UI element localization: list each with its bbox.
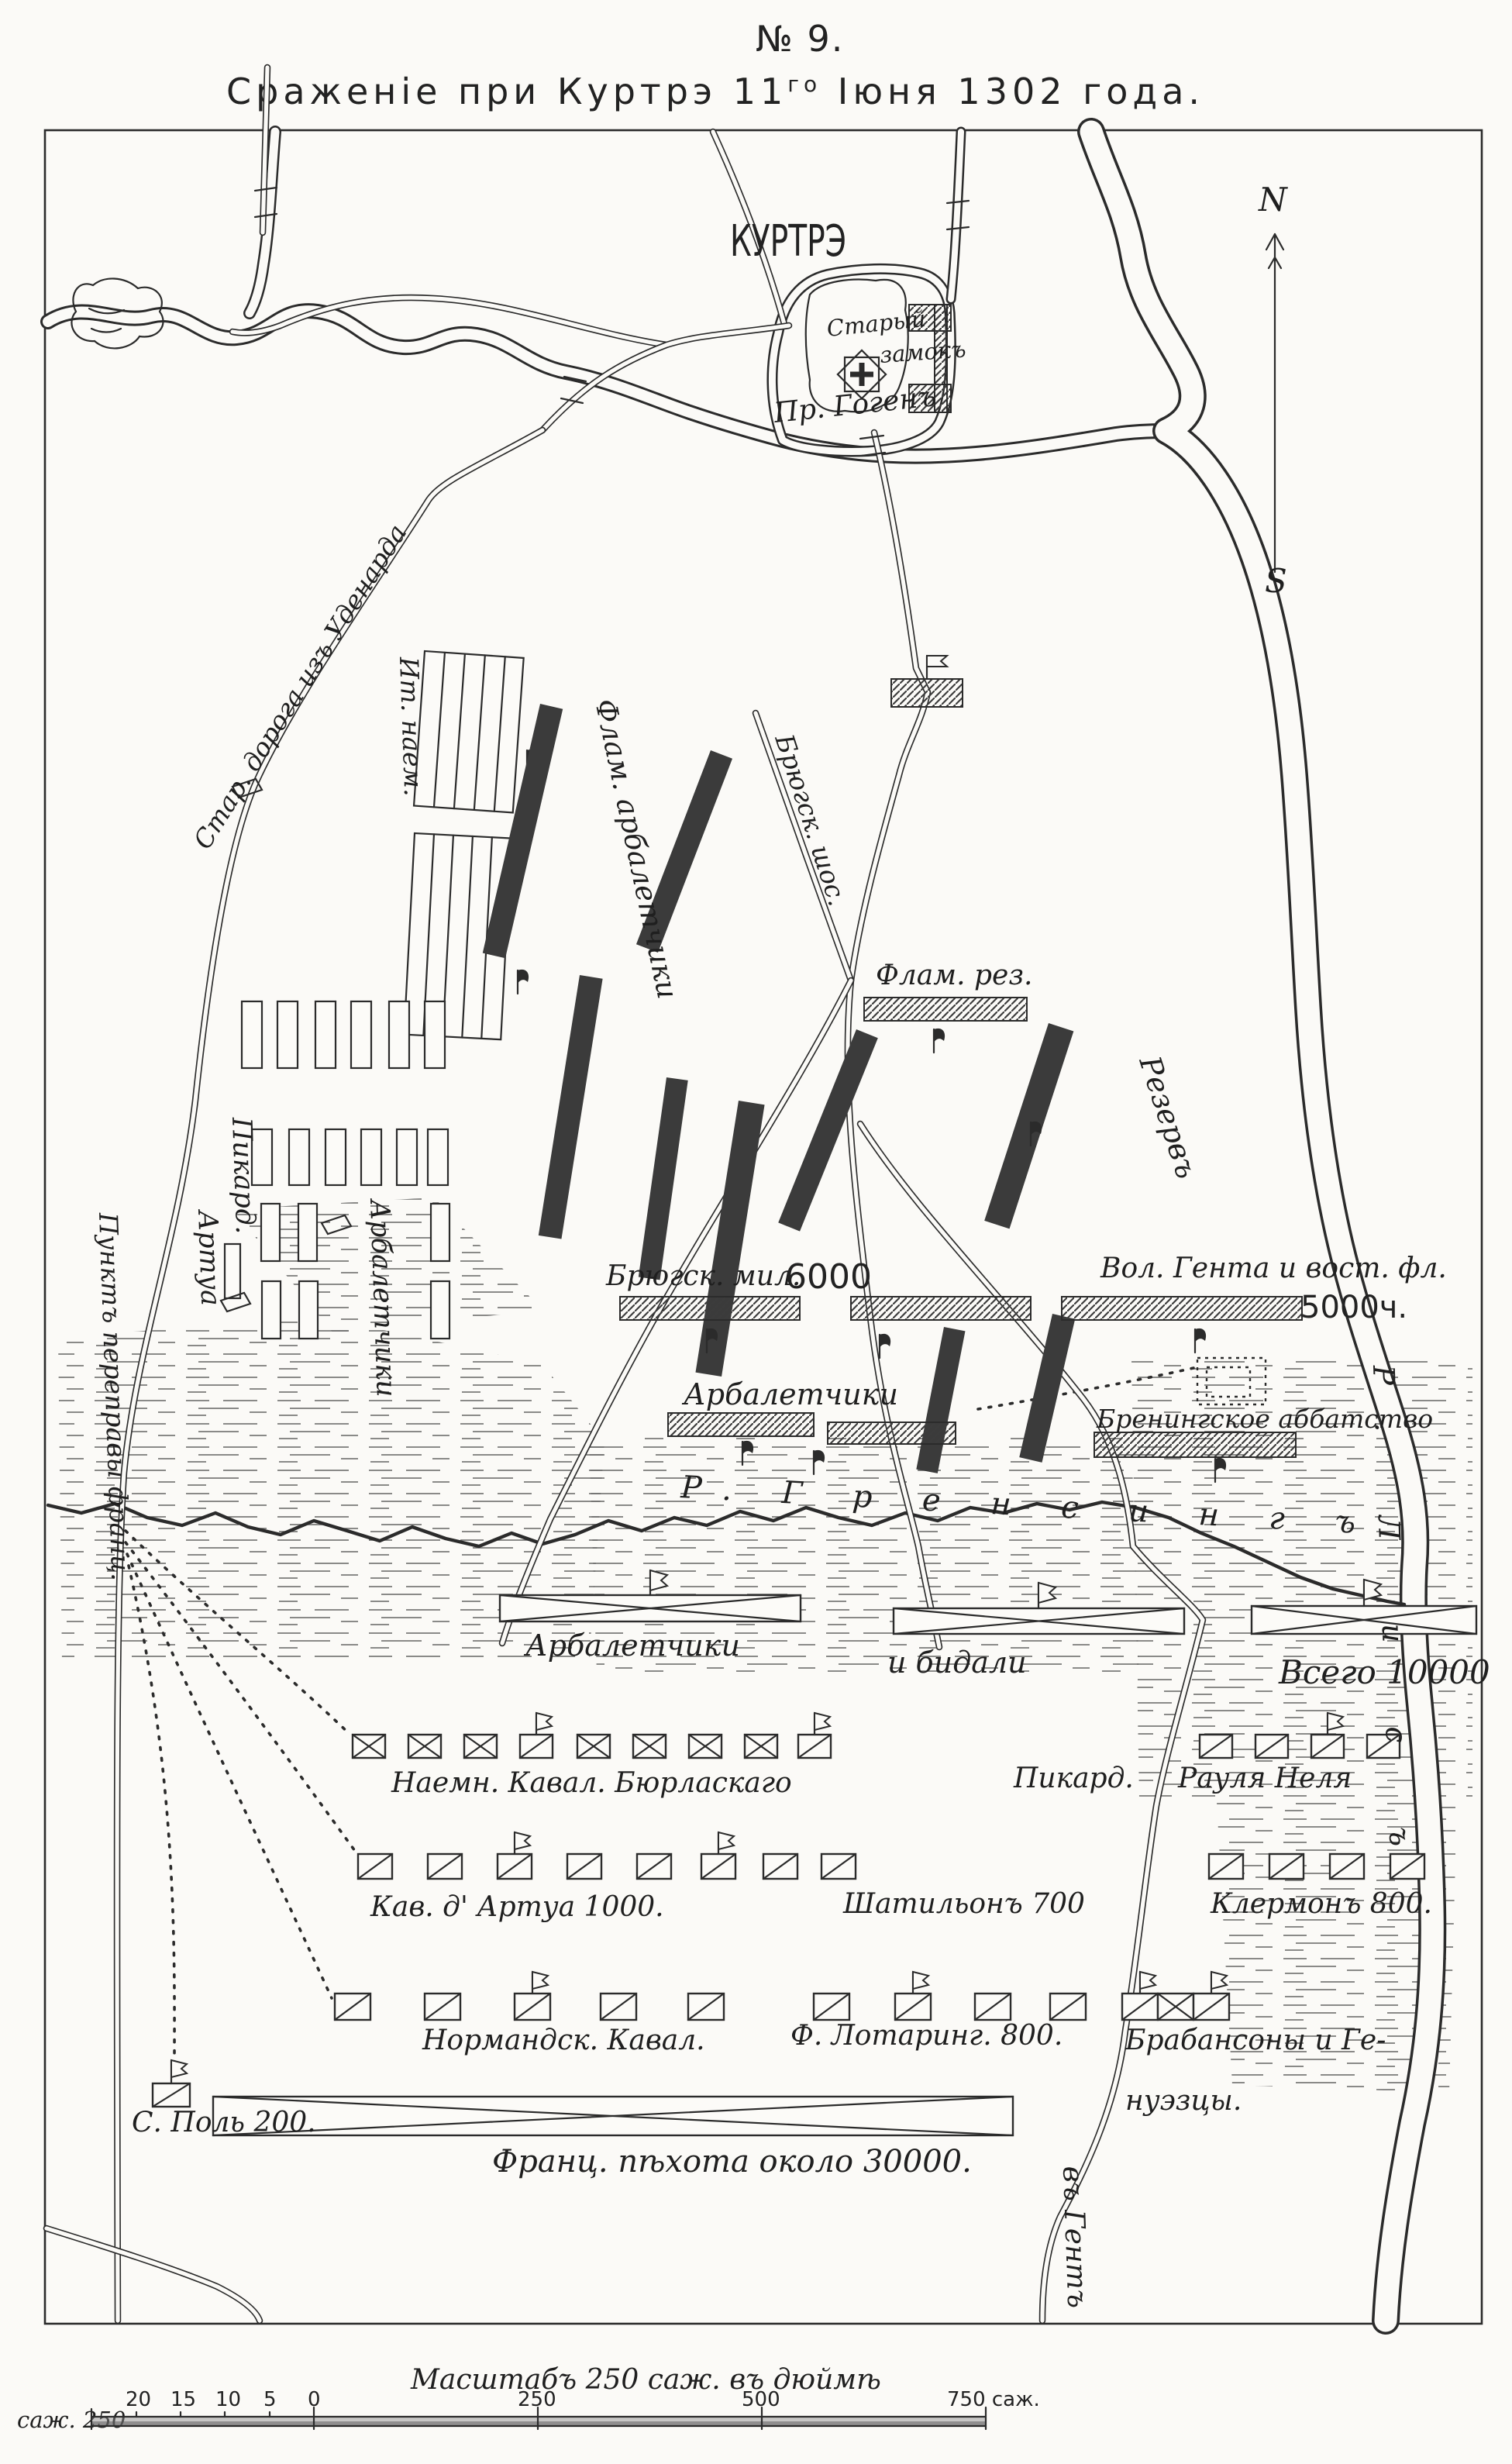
scale-tick: 5 <box>263 2388 277 2411</box>
row2-left-label: Кав. д' Артуа 1000. <box>370 1891 664 1923</box>
river-gogen-label: Пр. Гогенъ <box>772 381 938 429</box>
cavalry-square <box>1122 1972 1158 2020</box>
cavalry-square <box>335 1994 370 2020</box>
sheet-number: № 9. <box>756 18 844 60</box>
scale-tick: 10 <box>215 2388 241 2411</box>
road-outpost <box>891 656 963 707</box>
row3-left-label: Нормандск. Кавал. <box>422 2025 705 2056</box>
cavalry-square <box>763 1854 797 1879</box>
oudenaarde-road-label: Стар. дорога изъ Уденарда <box>188 519 413 854</box>
cavalry-square <box>975 1994 1011 2020</box>
scale-tick: 15 <box>170 2388 196 2411</box>
cavalry-square <box>689 1735 722 1758</box>
cavalry-square <box>745 1735 777 1758</box>
cavalry-square <box>577 1735 610 1758</box>
st-pol-unit <box>153 2060 190 2107</box>
cavalry-square <box>1158 1994 1193 2020</box>
old-castle-label-1: Старый <box>825 305 927 342</box>
row1-right-label: Рауля Неля <box>1177 1763 1352 1794</box>
cavalry-square <box>1269 1854 1304 1879</box>
compass-south: S <box>1265 562 1287 600</box>
compass-north: N <box>1258 181 1288 219</box>
row2-mid-label: Шатильонъ 700 <box>842 1888 1085 1920</box>
bruges-militia-label: Брюгск. мил. <box>605 1260 801 1292</box>
cavalry-square <box>498 1832 532 1879</box>
cavalry-square <box>1193 1972 1229 2020</box>
italian-mercenaries-label: Ит. наем. <box>394 656 429 797</box>
cavalry-square <box>1209 1854 1243 1879</box>
ghent-volunteers-label: Вол. Гента и вост. фл. <box>1100 1253 1447 1284</box>
roads <box>46 67 1203 2321</box>
total-label: Всего 10000 <box>1278 1653 1490 1691</box>
compass: N S <box>1258 181 1288 600</box>
row1-left-label: Наемн. Кавал. Бюрласкаго <box>391 1767 792 1799</box>
cavalry-square <box>1255 1735 1288 1758</box>
cavalry-square <box>1050 1994 1086 2020</box>
cavalry-square <box>358 1854 392 1879</box>
flemish-reserve-label: Флам. рез. <box>876 960 1032 991</box>
cavalry-square <box>701 1832 735 1879</box>
reserve-label: Резервъ <box>1132 1051 1204 1183</box>
scale-tick: 0 <box>308 2388 321 2411</box>
battle-map-sheet: № 9. Сраженіе при Куртрэ 11го Іюня 1302 … <box>0 0 1512 2464</box>
cavalry-square <box>798 1713 831 1758</box>
city-name: КУРТРЭ <box>730 216 846 267</box>
ghent-volunteers-count: 5000ч. <box>1300 1290 1407 1325</box>
cavalry-square <box>688 1994 724 2020</box>
bruges-road-label: Брюгск. шос. <box>769 729 853 909</box>
cavalry-square <box>821 1854 856 1879</box>
french-infantry-unit <box>213 2097 1013 2135</box>
st-pol-label: С. Поль 200. <box>132 2107 316 2138</box>
map-canvas: № 9. Сраженіе при Куртрэ 11го Іюня 1302 … <box>0 0 1512 2464</box>
artois-label: Артуа <box>191 1208 226 1307</box>
cavalry-square <box>601 1994 636 2020</box>
second-line-label-2: и бидали <box>887 1646 1027 1680</box>
cavalry-square <box>425 1994 460 2020</box>
cavalry-square <box>515 1972 550 2020</box>
scale-tick: 20 <box>126 2388 151 2411</box>
cavalry-square <box>1200 1735 1232 1758</box>
row3-right-label-2: нуэзцы. <box>1125 2085 1242 2117</box>
cavalry-square <box>633 1735 666 1758</box>
abbey-label: Бренингское аббатство <box>1096 1404 1433 1434</box>
scale-caption: Масштабъ 250 саж. въ дюймѣ <box>410 2364 881 2396</box>
scale-tick: 500 <box>742 2388 780 2411</box>
cavalry-square <box>1330 1854 1364 1879</box>
cavalry-square <box>895 1972 931 2020</box>
row2-right-label: Клермонъ 800. <box>1210 1888 1432 1920</box>
scale-tick: 750 саж. <box>947 2388 1040 2411</box>
picardy-label: Пикард. <box>226 1116 260 1235</box>
flemish-black-bars <box>483 704 1075 1473</box>
row3-mid-label: Ф. Лотаринг. 800. <box>790 2020 1063 2052</box>
map-title: Сраженіе при Куртрэ 11го Іюня 1302 года. <box>226 71 1204 112</box>
infantry-label: Франц. пѣхота около 30000. <box>492 2144 972 2180</box>
cavalry-square <box>814 1994 849 2020</box>
cavalry-square <box>520 1713 553 1758</box>
scale-tick: 250 <box>518 2388 556 2411</box>
cavalry-square <box>637 1854 671 1879</box>
cavalry-square <box>408 1735 441 1758</box>
flemish-crossbowmen-label: Флам. арбалетчики <box>588 696 684 1002</box>
scale-bar: Масштабъ 250 саж. въ дюймѣ саж. 250 20 1… <box>17 2364 1040 2433</box>
cavalry-square <box>353 1735 385 1758</box>
crossbowmen-center-label: Арбалетчики <box>681 1377 898 1411</box>
second-line-label-1: Арбалетчики <box>523 1628 740 1663</box>
row1-mid-label: Пикард. <box>1013 1763 1134 1794</box>
cavalry-square <box>567 1854 601 1879</box>
bruges-militia-count: 6000 <box>785 1257 872 1297</box>
ghent-road-label: въ Гентъ <box>1056 2166 1093 2309</box>
cavalry-square <box>464 1735 497 1758</box>
row3-right-label-1: Брабансоны и Ге- <box>1125 2025 1386 2056</box>
cavalry-square <box>428 1854 462 1879</box>
